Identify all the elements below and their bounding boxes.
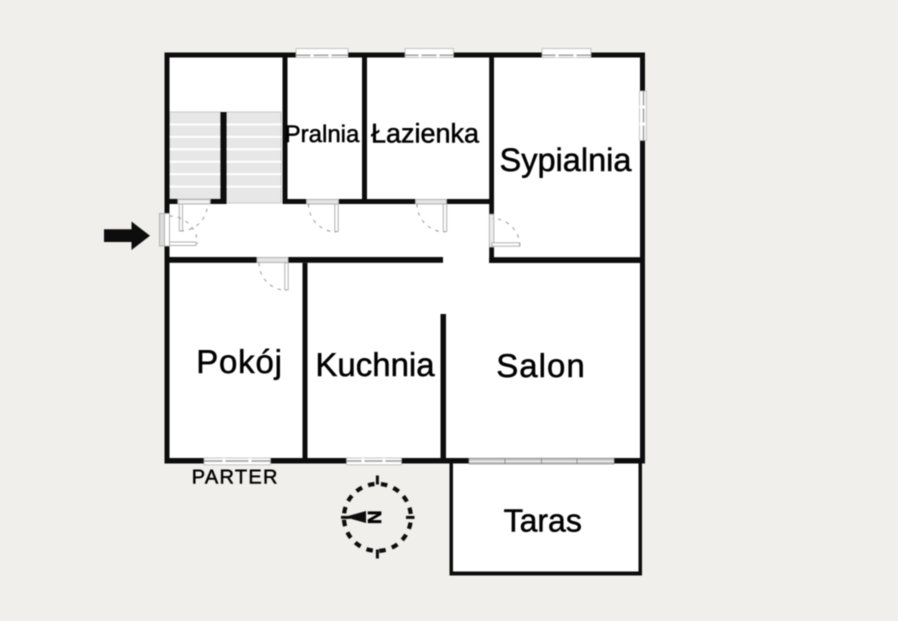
svg-text:Taras: Taras [504,503,582,539]
svg-text:N: N [363,510,384,524]
svg-text:Pralnia: Pralnia [285,121,360,148]
svg-text:Salon: Salon [496,347,585,384]
svg-text:Kuchnia: Kuchnia [315,346,435,383]
svg-text:PARTER: PARTER [192,466,279,488]
svg-text:Sypialnia: Sypialnia [500,142,633,178]
svg-text:Łazienka: Łazienka [371,119,480,149]
svg-text:Pokój: Pokój [196,343,283,380]
